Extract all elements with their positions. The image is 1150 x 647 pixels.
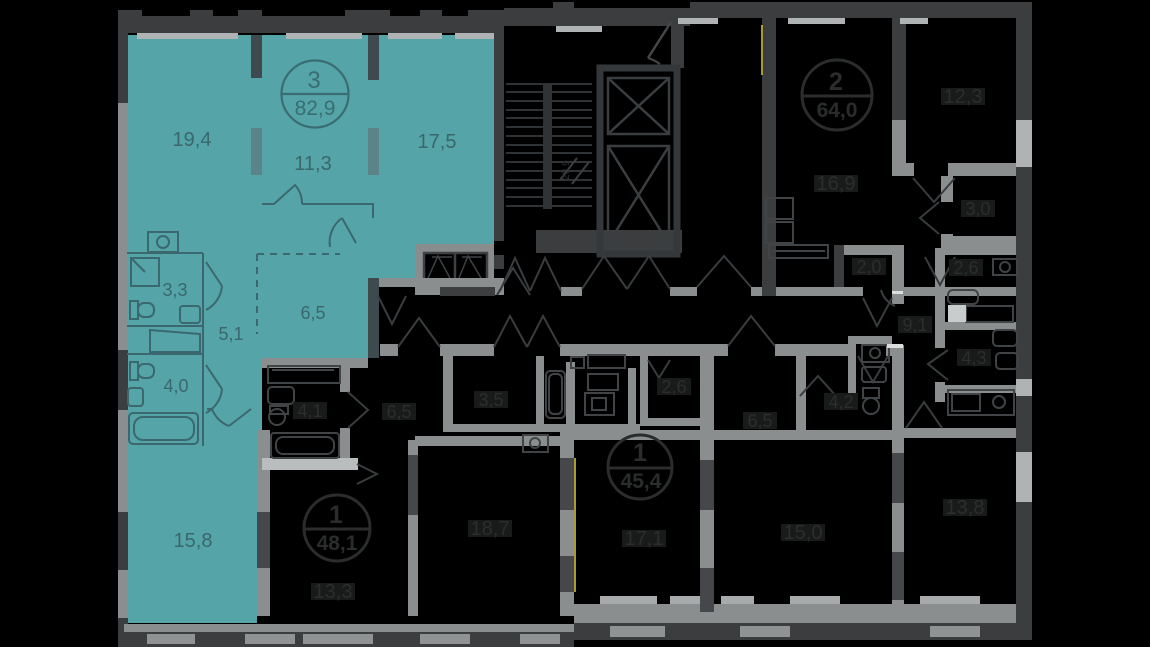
svg-text:13,3: 13,3 (314, 581, 353, 603)
svg-text:2,6: 2,6 (953, 258, 978, 278)
svg-text:17,1: 17,1 (625, 528, 664, 550)
svg-text:17,5: 17,5 (418, 131, 457, 153)
svg-text:11,3: 11,3 (294, 153, 331, 175)
svg-text:15,8: 15,8 (174, 530, 213, 552)
svg-text:4,3: 4,3 (961, 348, 986, 368)
svg-text:48,1: 48,1 (317, 532, 358, 555)
svg-text:6,5: 6,5 (747, 411, 772, 431)
svg-text:4,2: 4,2 (828, 392, 853, 412)
svg-text:19,4: 19,4 (173, 129, 212, 151)
svg-text:1: 1 (633, 439, 647, 467)
svg-text:16,9: 16,9 (817, 173, 856, 195)
svg-text:1: 1 (329, 501, 343, 529)
svg-text:3,0: 3,0 (965, 199, 990, 219)
svg-text:9,1: 9,1 (902, 315, 927, 335)
svg-text:18,7: 18,7 (471, 518, 510, 540)
svg-text:4,0: 4,0 (163, 376, 188, 396)
svg-text:15,0: 15,0 (784, 522, 823, 544)
svg-text:2,0: 2,0 (856, 257, 881, 277)
svg-text:12,3: 12,3 (944, 86, 983, 108)
svg-text:64,0: 64,0 (817, 99, 858, 122)
svg-text:2,6: 2,6 (661, 377, 686, 397)
svg-text:45,4: 45,4 (621, 470, 662, 493)
svg-text:2: 2 (829, 68, 843, 96)
svg-text:13,8: 13,8 (946, 497, 985, 519)
svg-text:5,1: 5,1 (218, 324, 243, 344)
svg-text:23,9: 23,9 (561, 160, 572, 180)
svg-text:82,9: 82,9 (295, 97, 336, 120)
svg-text:3,3: 3,3 (162, 280, 187, 300)
svg-text:3,5: 3,5 (478, 390, 503, 410)
svg-text:3: 3 (307, 67, 320, 94)
svg-text:6,5: 6,5 (300, 303, 325, 323)
svg-text:4,1: 4,1 (297, 401, 322, 421)
svg-text:6,5: 6,5 (386, 402, 411, 422)
